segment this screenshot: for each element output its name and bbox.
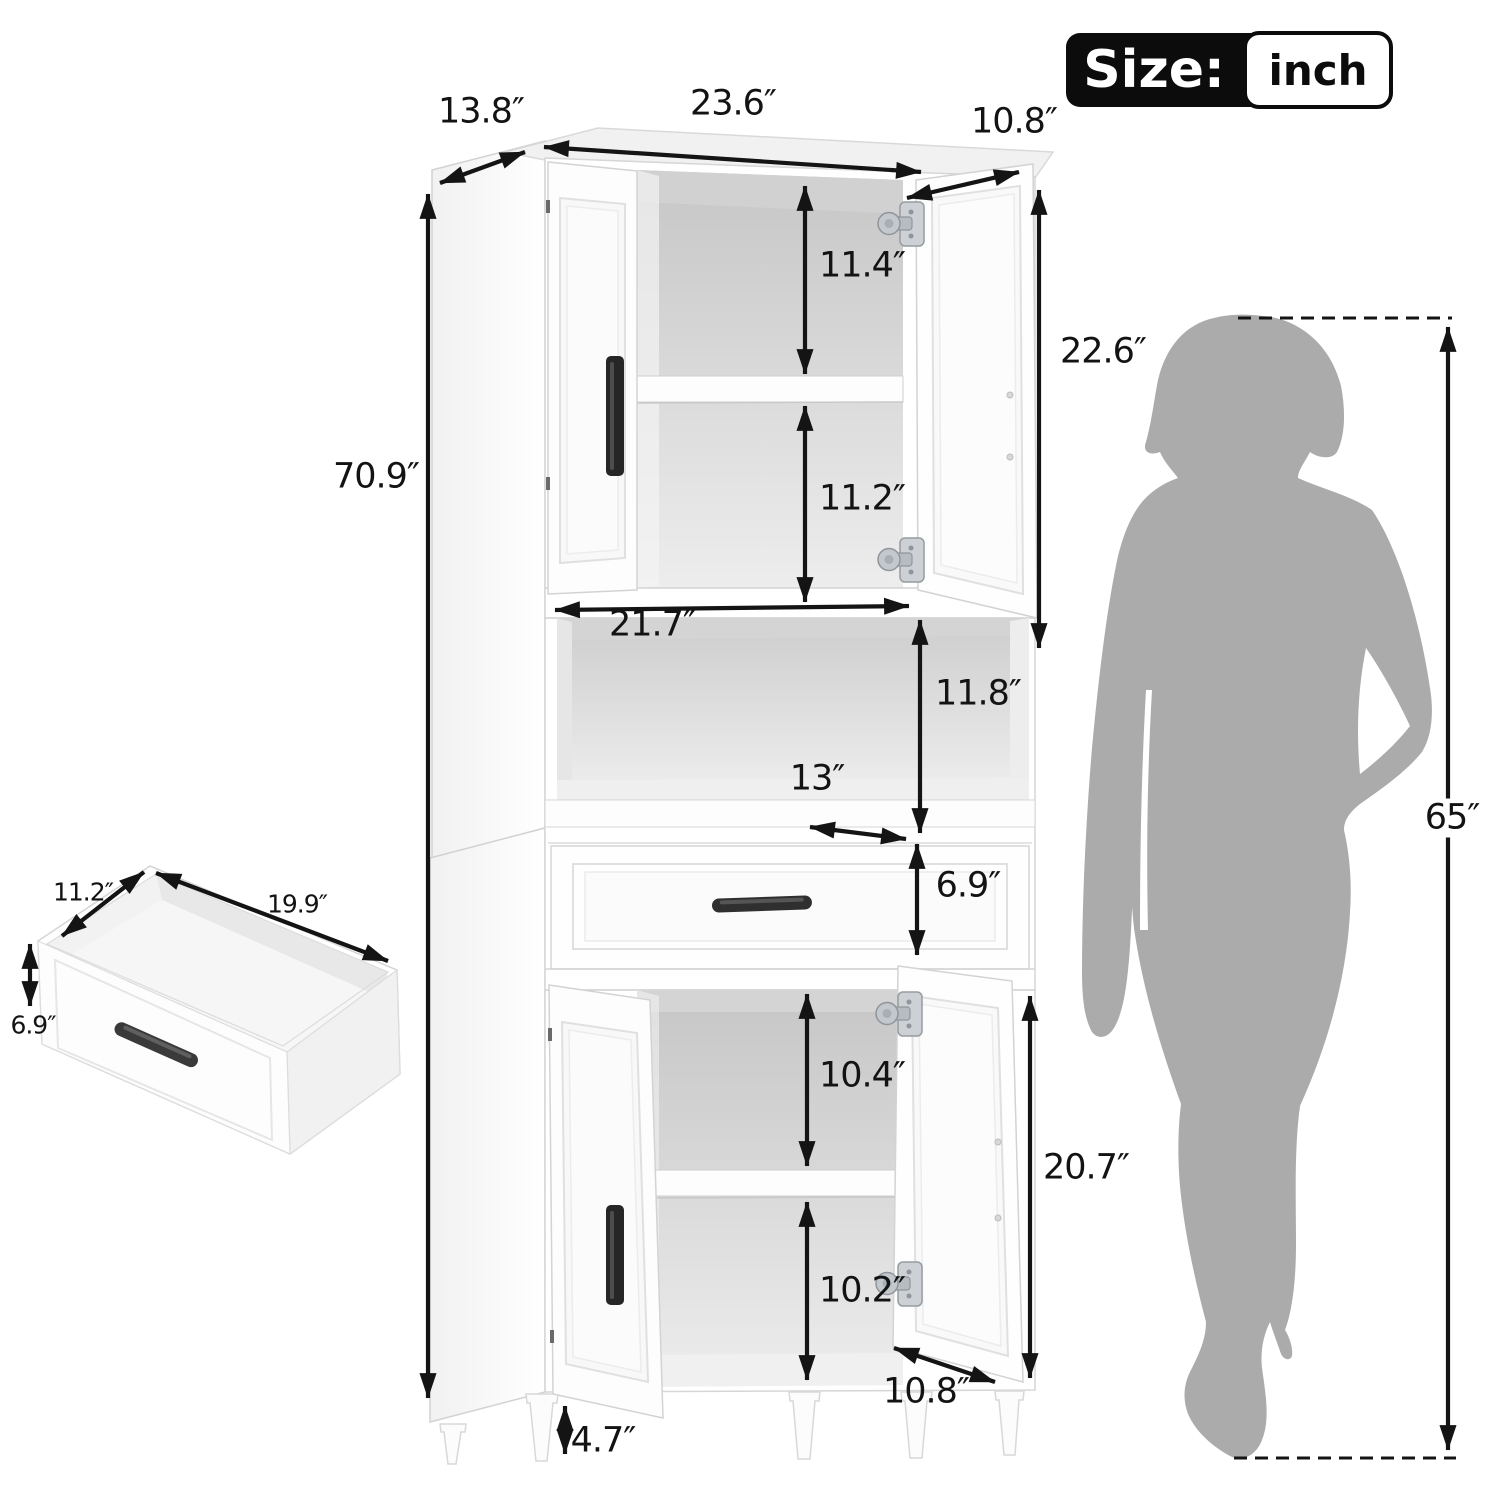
dim-label-open-shelf-height: 11.8″ (935, 677, 1021, 712)
cabinet-side-panel-lower (430, 828, 545, 1422)
dim-label-drawer-height: 6.9″ (936, 869, 1001, 904)
cabinet-side-panel (432, 141, 545, 858)
size-badge-label: Size: (1066, 40, 1242, 100)
size-badge: Size: inch (1066, 33, 1390, 107)
dim-label-leg-height: 4.7″ (571, 1424, 636, 1459)
open-shelf-interior (545, 618, 1035, 843)
dim-label-person-height: 65″ (1420, 799, 1485, 838)
dim-label-top-depth: 13.8″ (438, 95, 524, 130)
lower-left-door (548, 985, 663, 1418)
upper-door-handle (606, 356, 624, 476)
lower-door-handle (606, 1205, 624, 1305)
product-dimension-diagram: Size: inch 13.8″ 23.6″ 10.8″ 11.4″ 22.6″… (0, 0, 1500, 1500)
dim-label-top-width: 23.6″ (690, 87, 776, 122)
dim-label-open-shelf-depth: 13″ (790, 762, 845, 797)
dim-label-upper-door-height: 22.6″ (1060, 335, 1146, 370)
dim-label-upper-lower-space: 11.2″ (819, 482, 905, 517)
woman-silhouette (1082, 315, 1432, 1459)
dim-label-drawer3d-width: 19.9″ (267, 892, 327, 917)
dim-label-lower-lower-space: 10.2″ (819, 1274, 905, 1309)
size-badge-unit-box: inch (1243, 31, 1393, 109)
size-badge-unit-label: inch (1268, 46, 1367, 95)
dim-label-lower-door-height: 20.7″ (1043, 1151, 1129, 1186)
dim-label-total-height: 70.9″ (333, 460, 419, 495)
diagram-graphics (0, 0, 1500, 1500)
upper-cabinet-interior (637, 170, 903, 588)
lower-cabinet-interior (637, 990, 903, 1387)
dim-label-lower-door-width: 10.8″ (883, 1375, 969, 1410)
dim-label-open-shelf-width: 21.7″ (609, 608, 695, 643)
upper-left-door (546, 162, 637, 594)
dim-label-upper-shelf-space: 11.4″ (819, 249, 905, 284)
dim-label-drawer3d-depth: 11.2″ (53, 880, 113, 905)
dim-label-lower-upper-space: 10.4″ (819, 1059, 905, 1094)
upper-right-door (916, 164, 1037, 618)
drawer-3d-illustration (38, 866, 400, 1154)
dim-label-top-door-width: 10.8″ (971, 105, 1057, 140)
dim-label-drawer3d-height: 6.9″ (10, 1013, 55, 1038)
cabinet-illustration (430, 128, 1053, 1464)
drawer-front (551, 846, 1029, 969)
